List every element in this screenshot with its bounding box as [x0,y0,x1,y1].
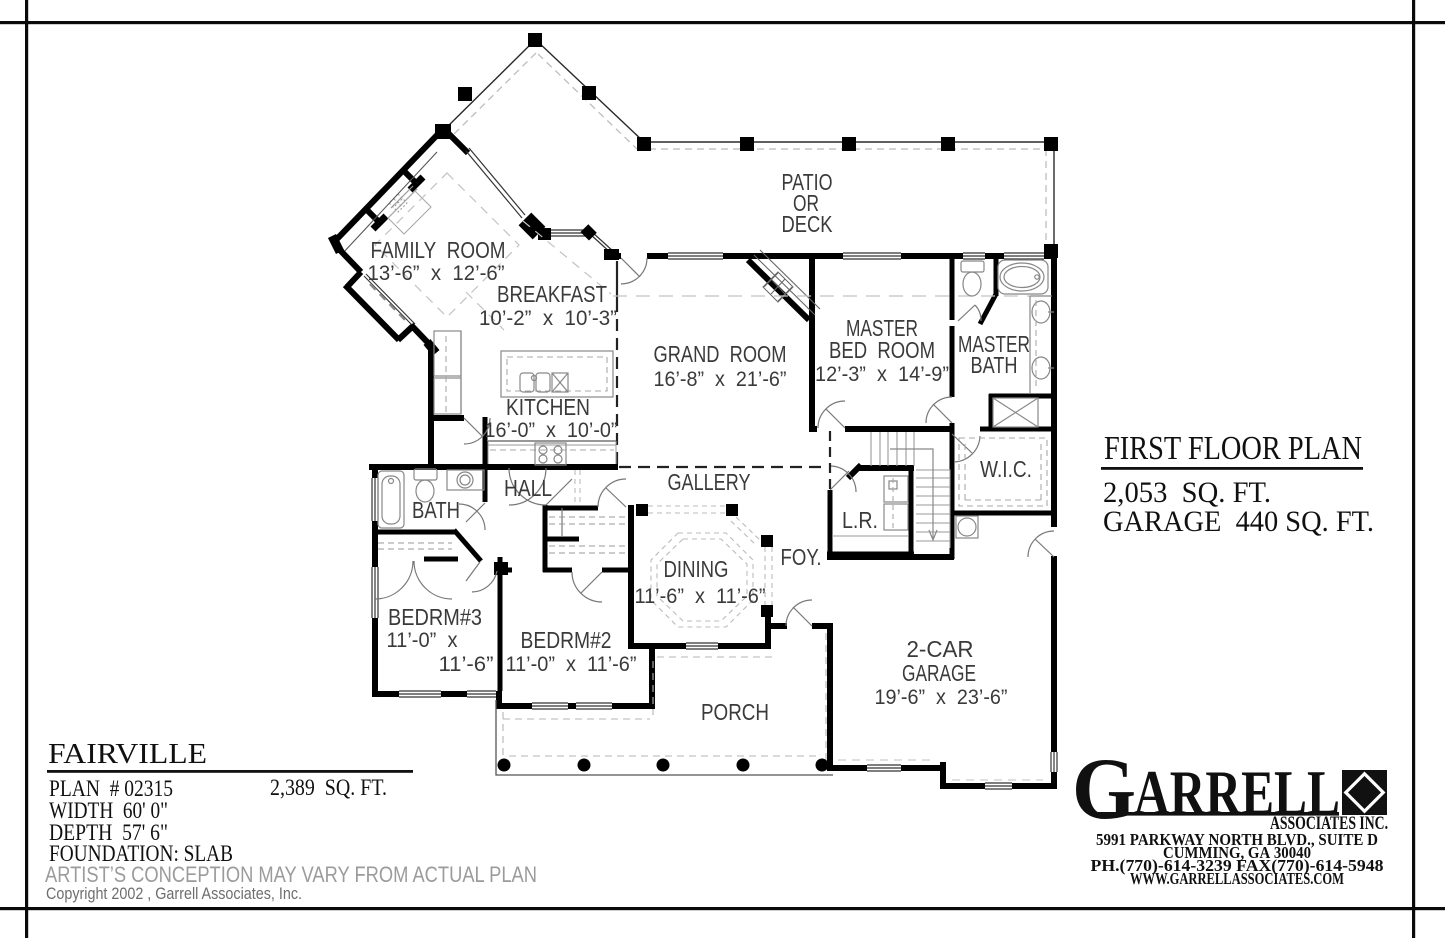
svg-text:DECK: DECK [782,211,834,237]
svg-text:GRAND ROOM: GRAND ROOM [654,341,787,367]
svg-text:Copyright 2002 , Garrell Assoc: Copyright 2002 , Garrell Associates, Inc… [46,884,302,903]
svg-text:DINING: DINING [664,556,729,582]
svg-text:12’-3” x 14’-9”: 12’-3” x 14’-9” [815,363,949,386]
svg-text:10’-2” x 10’-3”: 10’-2” x 10’-3” [479,307,617,330]
svg-text:W.I.C.: W.I.C. [980,456,1032,482]
svg-text:FAMILY ROOM: FAMILY ROOM [371,237,506,263]
svg-text:BATH: BATH [971,352,1018,378]
svg-text:16’-0” x 10’-0”: 16’-0” x 10’-0” [485,419,618,442]
svg-text:WWW.GARRELLASSOCIATES.COM: WWW.GARRELLASSOCIATES.COM [1130,869,1344,888]
svg-text:PORCH: PORCH [701,699,769,725]
svg-text:11’-0” x 11’-6”: 11’-0” x 11’-6” [506,653,637,676]
svg-text:BREAKFAST: BREAKFAST [497,281,607,307]
svg-text:2-CAR: 2-CAR [907,636,974,662]
svg-text:19’-6” x 23’-6”: 19’-6” x 23’-6” [875,686,1008,709]
svg-text:GARAGE 440 SQ. FT.: GARAGE 440 SQ. FT. [1103,505,1374,538]
svg-text:G: G [1072,741,1136,838]
svg-text:KITCHEN: KITCHEN [506,394,590,420]
svg-text:BED ROOM: BED ROOM [829,337,935,363]
svg-text:2,389 SQ. FT.: 2,389 SQ. FT. [270,775,387,800]
svg-text:BEDRM#3: BEDRM#3 [388,604,482,630]
svg-text:FAIRVILLE: FAIRVILLE [48,738,207,770]
svg-text:L.R.: L.R. [842,507,878,533]
svg-text:11’-6”: 11’-6” [439,653,494,676]
svg-text:BATH: BATH [412,497,460,523]
svg-text:13’-6” x 12’-6”: 13’-6” x 12’-6” [368,262,505,285]
svg-text:FOY.: FOY. [781,544,822,570]
svg-text:HALL: HALL [504,475,552,501]
svg-text:GARAGE: GARAGE [902,660,976,686]
svg-text:FIRST FLOOR PLAN: FIRST FLOOR PLAN [1104,430,1362,467]
svg-text:11’-6” x 11’-6”: 11’-6” x 11’-6” [635,585,766,608]
svg-text:16’-8” x 21’-6”: 16’-8” x 21’-6” [654,368,787,391]
svg-text:BEDRM#2: BEDRM#2 [521,627,612,653]
svg-text:GALLERY: GALLERY [668,469,751,495]
svg-text:11’-0” x: 11’-0” x [387,629,458,652]
